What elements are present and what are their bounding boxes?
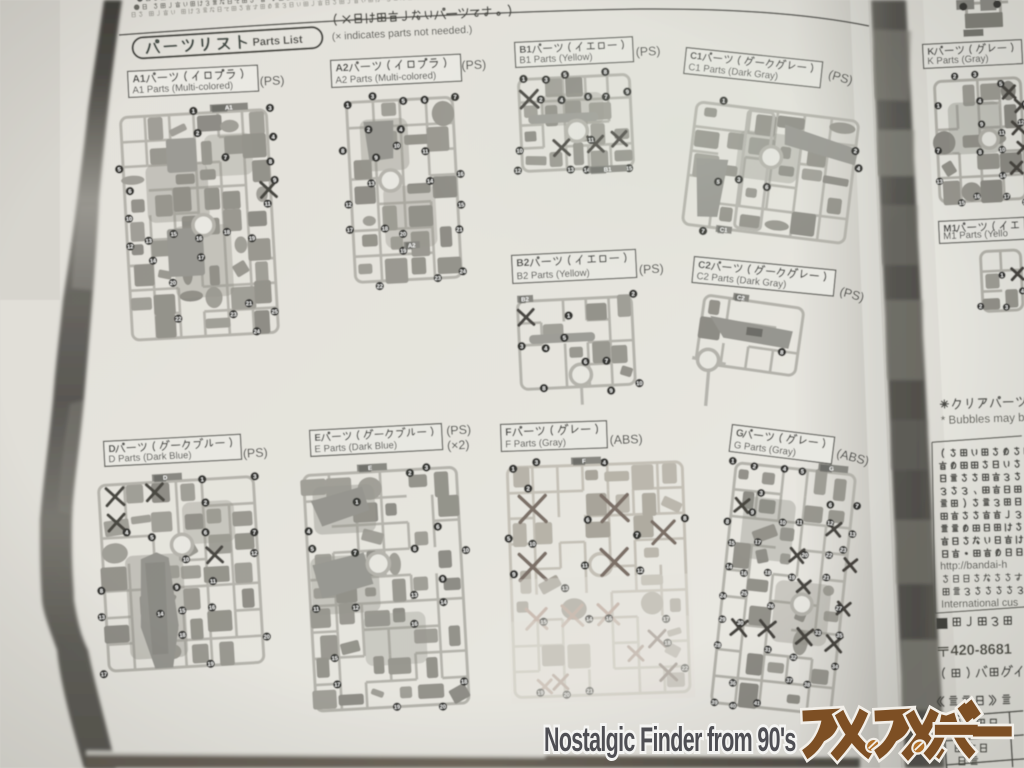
svg-text:Nostalgic Finder from 90's: Nostalgic Finder from 90's	[544, 721, 796, 759]
